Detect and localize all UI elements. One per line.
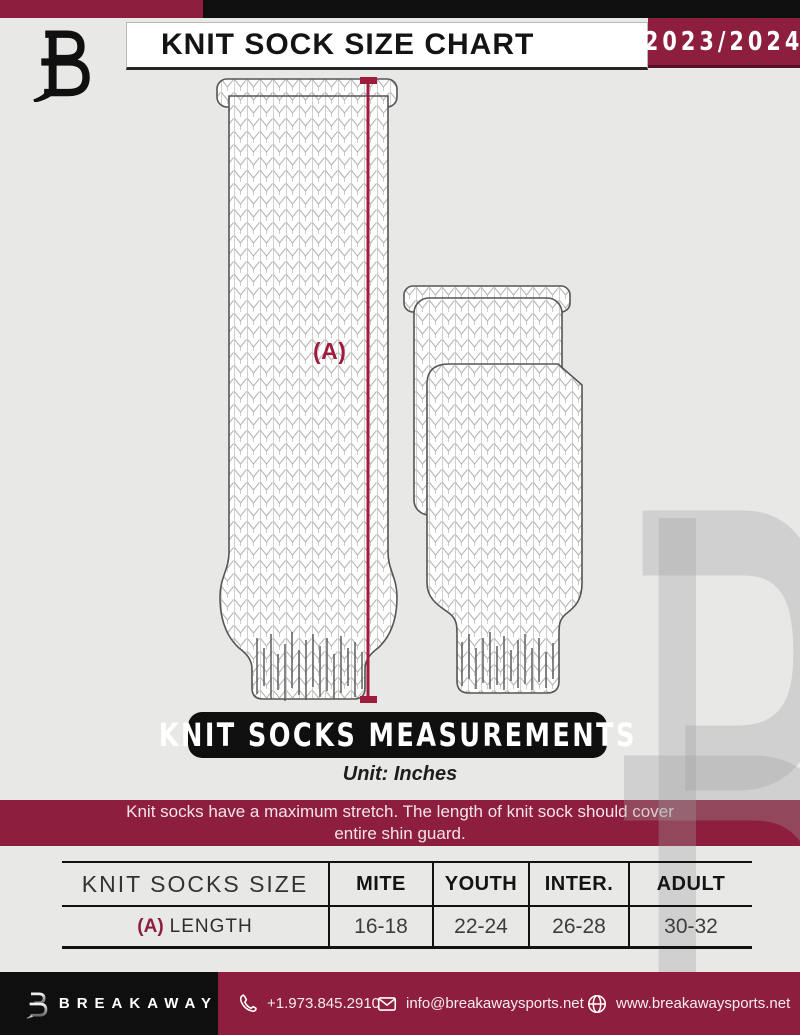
brand-name: BREAKAWAY — [59, 995, 218, 1012]
row-key-a: (A) — [137, 916, 163, 938]
footer: BREAKAWAY +1.973.845.2910 info@breakaway… — [0, 972, 800, 1035]
length-value-mite: 16-18 — [328, 907, 432, 946]
knit-sock-size-chart-flyer: KNIT SOCK SIZE CHART 2023/2024 — [0, 0, 800, 1035]
back-sock-illustration — [404, 286, 570, 515]
length-value-adult: 30-32 — [628, 907, 752, 946]
column-header-adult: ADULT — [628, 863, 752, 907]
measurement-line-a — [360, 77, 377, 703]
length-value-youth: 22-24 — [432, 907, 528, 946]
measurements-banner: KNIT SOCKS MEASUREMENTS — [188, 712, 607, 758]
unit-label: Unit: Inches — [0, 763, 800, 786]
note-line-2: entire shin guard. — [334, 823, 465, 845]
season-badge: 2023/2024 — [648, 18, 800, 68]
email-address: info@breakawaysports.net — [406, 995, 584, 1012]
phone-contact: +1.973.845.2910 — [238, 972, 380, 1035]
breakaway-logo-icon — [26, 22, 94, 102]
page-title: KNIT SOCK SIZE CHART — [161, 28, 534, 62]
phone-number: +1.973.845.2910 — [267, 995, 380, 1012]
website-url: www.breakawaysports.net — [616, 995, 790, 1012]
size-table: KNIT SOCKS SIZE MITE YOUTH INTER. ADULT … — [62, 861, 752, 949]
top-strip-black — [203, 0, 800, 18]
column-header-mite: MITE — [328, 863, 432, 907]
large-sock-ribbing — [257, 632, 362, 701]
size-table-header: KNIT SOCKS SIZE — [62, 863, 328, 907]
footer-brand-block: BREAKAWAY — [0, 972, 218, 1035]
column-header-youth: YOUTH — [432, 863, 528, 907]
title-bar: KNIT SOCK SIZE CHART — [126, 22, 648, 70]
phone-icon — [238, 993, 259, 1014]
season-label: 2023/2024 — [644, 27, 800, 57]
email-contact: info@breakawaysports.net — [376, 972, 584, 1035]
large-sock-illustration — [217, 79, 397, 701]
row-label-text: LENGTH — [170, 916, 253, 938]
column-header-inter: INTER. — [528, 863, 628, 907]
measurements-banner-label: KNIT SOCKS MEASUREMENTS — [158, 716, 636, 754]
breakaway-logo-footer-icon — [24, 981, 49, 1027]
front-sock-ribbing — [462, 632, 553, 690]
website-contact: www.breakawaysports.net — [586, 972, 790, 1035]
measurement-label-a: (A) — [313, 338, 346, 364]
row-label-length: (A) LENGTH — [62, 907, 328, 946]
mail-icon — [376, 993, 398, 1015]
length-value-inter: 26-28 — [528, 907, 628, 946]
top-strip-maroon — [0, 0, 203, 18]
globe-icon — [586, 993, 608, 1015]
